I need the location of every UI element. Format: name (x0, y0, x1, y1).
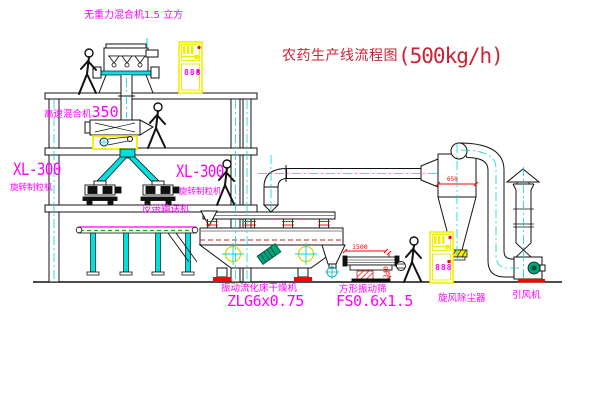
cabinet-roof-display: 888 (184, 68, 201, 77)
title-capacity: (500kg/h) (398, 44, 503, 68)
belt-conveyor-figure (76, 227, 198, 275)
stack-figure (507, 169, 539, 257)
gravity-mixer-label: 无重力混合机1.5 立方 (84, 11, 183, 21)
high-speed-mixer-figure (85, 120, 153, 149)
fan-label: 引风机 (512, 291, 541, 301)
high-speed-mixer-model: 350 (92, 105, 119, 120)
granulator-right-figure (141, 181, 179, 205)
belt-conveyor-label: 皮带输送机 (142, 205, 190, 215)
exhaust-duct (264, 165, 421, 212)
dryer-model-label: ZLG6x0.75 (227, 294, 304, 309)
screen-model-label: FS0.6x1.5 (336, 294, 413, 309)
cabinet-ground-display: 888 (435, 263, 452, 272)
granulator-right-model-label: XL-300 (176, 164, 224, 181)
diagram-title: 农药生产线流程图 (500kg/h) (282, 44, 503, 68)
cyclone-label: 旋风除尘器 (438, 294, 486, 304)
high-speed-mixer-label: 高速混合机 350 (44, 105, 119, 120)
title-text: 农药生产线流程图 (282, 45, 398, 68)
vibrating-screen-figure (343, 249, 406, 282)
granulator-left-model-label: XL-300 (13, 162, 61, 179)
cyclone-diameter-dimension: 650 (447, 176, 458, 183)
fluid-bed-dryer-figure (200, 211, 345, 281)
high-speed-mixer-name: 高速混合机 (44, 110, 92, 121)
screen-length-dimension: 1500 (352, 243, 368, 251)
granulator-left-label: 旋转制粒机 (10, 184, 53, 193)
control-cabinet-ground (430, 232, 453, 283)
person-ground (404, 237, 421, 282)
screen-height-dimension: 340 (382, 266, 390, 278)
cyclone-outlet-circle (451, 143, 467, 159)
draft-fan-figure (514, 257, 545, 283)
diagram-canvas: 无重力混合机1.5 立方 农药生产线流程图 (500kg/h) 高速混合机 35… (0, 0, 600, 403)
granulator-left-figure (83, 181, 121, 205)
granulator-right-label: 旋转制粒机 (179, 188, 222, 197)
